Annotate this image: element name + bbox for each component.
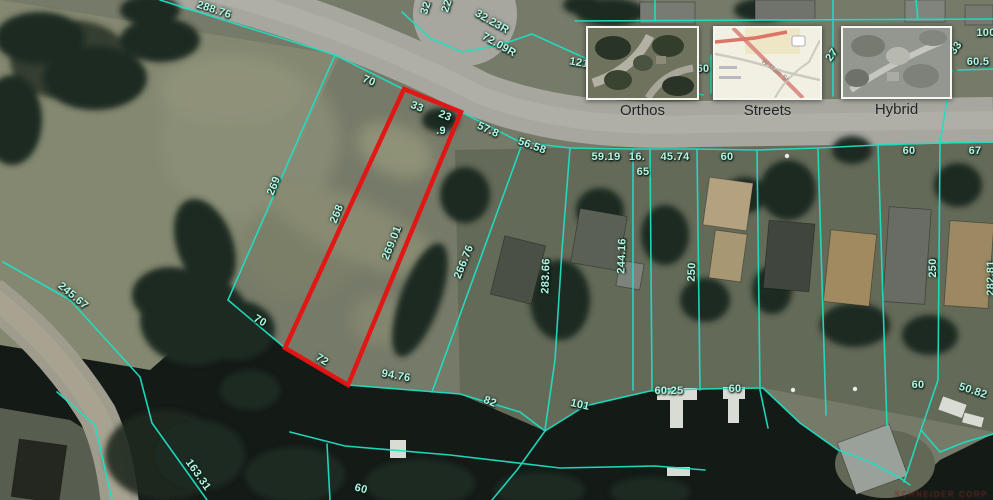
parcel-boundary-line — [958, 69, 993, 70]
provider-watermark: SCHNEIDER CORP — [895, 490, 988, 499]
base-layer-label-streets[interactable]: Streets — [703, 102, 832, 119]
streets-thumbnail[interactable]: W Main St — [713, 26, 822, 100]
base-layer-option-hybrid[interactable]: Hybrid — [841, 26, 952, 99]
base-layer-label-hybrid[interactable]: Hybrid — [831, 101, 962, 118]
hybrid-thumbnail[interactable] — [841, 26, 952, 99]
map-viewport[interactable]: 288.76322232.23R72.09R121703323.957.856.… — [0, 0, 993, 500]
base-layer-option-orthos[interactable]: Orthos — [586, 26, 699, 100]
base-layer-label-orthos[interactable]: Orthos — [576, 102, 709, 119]
orthos-thumbnail[interactable] — [586, 26, 699, 100]
base-layer-option-streets[interactable]: W Main St Streets — [713, 26, 822, 100]
